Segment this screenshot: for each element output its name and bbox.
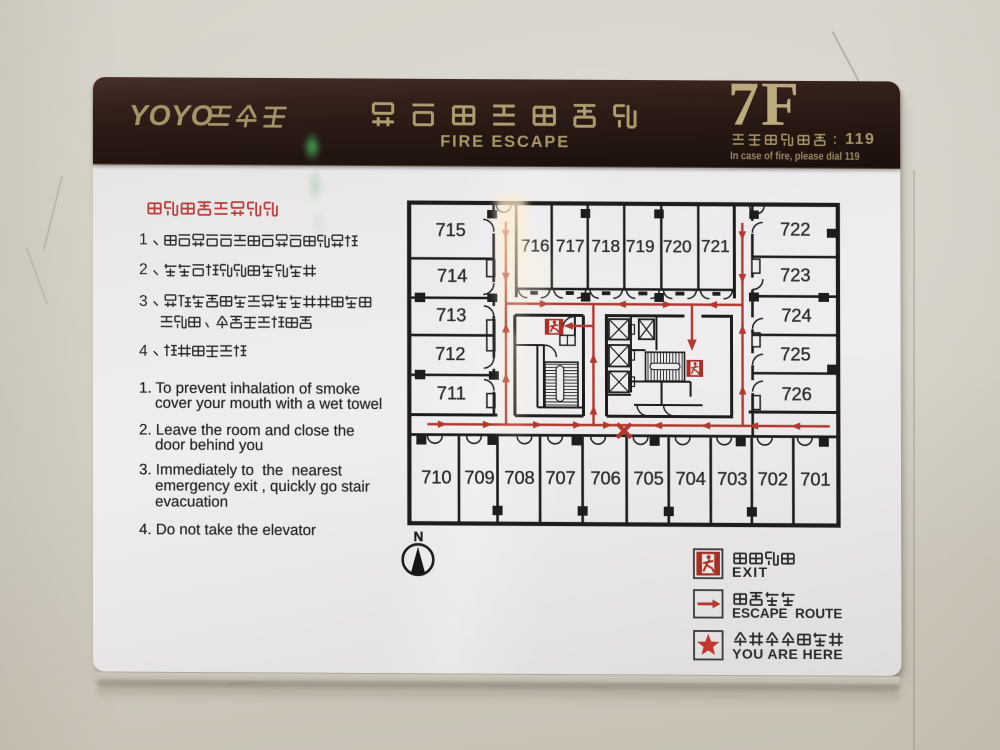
svg-text:706: 706 [590,469,620,489]
svg-text:ESCAPE ROUTE: ESCAPE ROUTE [732,606,842,622]
svg-text:702: 702 [758,469,788,489]
svg-text:719: 719 [626,236,655,256]
svg-text:714: 714 [437,266,467,286]
svg-text:701: 701 [800,470,830,490]
svg-text:722: 722 [780,220,810,240]
svg-text:EXIT: EXIT [732,564,768,580]
svg-text:726: 726 [781,384,811,404]
svg-text:725: 725 [780,345,810,365]
svg-text:708: 708 [504,468,534,488]
svg-text:711: 711 [437,384,466,404]
svg-text:720: 720 [663,236,692,256]
svg-text:713: 713 [436,305,466,325]
svg-text:718: 718 [591,236,620,256]
svg-text:707: 707 [545,468,575,488]
svg-text:723: 723 [780,265,810,285]
svg-text:721: 721 [701,236,730,256]
svg-text:N: N [414,529,424,544]
svg-text:705: 705 [633,469,663,489]
svg-text:704: 704 [676,469,706,489]
svg-text:YOU ARE HERE: YOU ARE HERE [732,646,843,663]
svg-text:724: 724 [781,306,811,326]
svg-text:712: 712 [435,344,465,364]
svg-text:710: 710 [421,468,451,488]
svg-text:709: 709 [464,468,494,488]
svg-text:715: 715 [435,220,465,240]
svg-text:703: 703 [717,469,747,489]
